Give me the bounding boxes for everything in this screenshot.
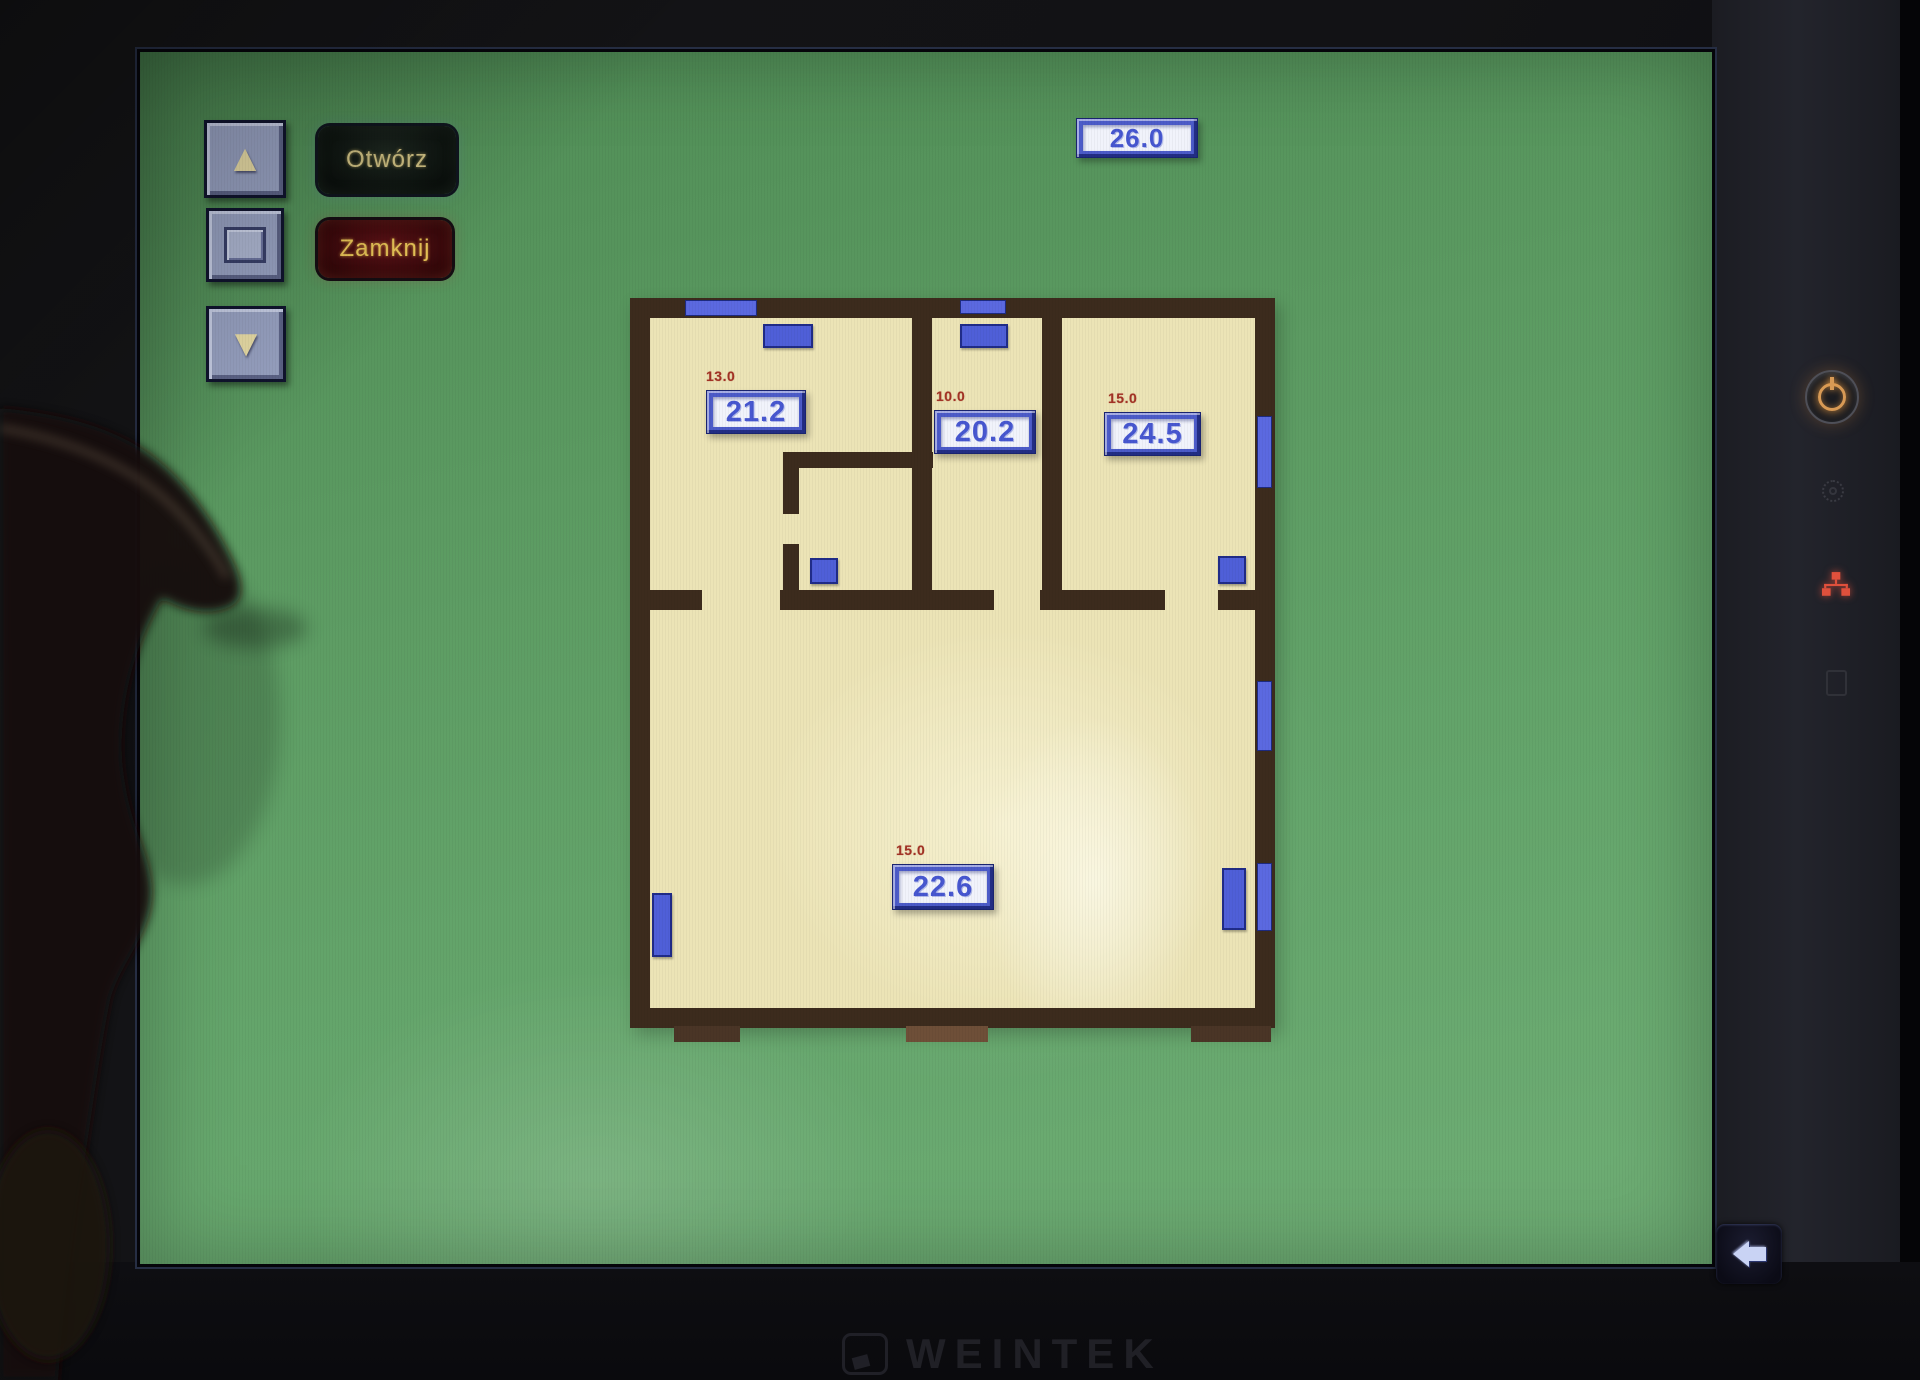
window-right-main-2 (1257, 863, 1272, 931)
wall-divider-b (780, 590, 994, 610)
main-room-temperature-value: 22.6 (899, 871, 987, 903)
down-arrow-icon: ▼ (227, 325, 265, 363)
back-button[interactable] (1716, 1224, 1782, 1284)
bezel-right-strip (1712, 0, 1900, 1380)
radiator-main-left (652, 893, 672, 957)
radiator-room2 (960, 324, 1008, 348)
wall-closet-left-upper (783, 468, 799, 514)
open-button-label: Otwórz (346, 146, 428, 174)
sd-card-icon (1826, 670, 1847, 696)
radiator-room3 (1218, 556, 1246, 584)
room3-temperature-value: 24.5 (1111, 419, 1194, 449)
close-button-label: Zamknij (339, 235, 430, 263)
room1-temperature-value: 21.2 (713, 397, 799, 427)
wall-bottom (630, 1008, 1275, 1028)
close-button[interactable]: Zamknij (318, 220, 452, 278)
room2-temperature-value: 20.2 (941, 417, 1029, 447)
wall-stub-center (906, 1026, 988, 1042)
room2-temperature-display[interactable]: 20.2 (934, 410, 1036, 454)
wall-divider-a (630, 590, 702, 610)
back-arrow-icon (1733, 1241, 1766, 1267)
outdoor-temperature-display[interactable]: 26.0 (1076, 118, 1198, 158)
open-button[interactable]: Otwórz (318, 126, 456, 194)
brightness-icon (1822, 480, 1844, 502)
room3-setpoint-label: 15.0 (1108, 390, 1137, 406)
power-button[interactable] (1805, 370, 1859, 424)
brand-mark-icon (842, 1333, 888, 1375)
main-room-temperature-display[interactable]: 22.6 (892, 864, 994, 910)
brand-name: WEINTEK (906, 1330, 1163, 1378)
ethernet-icon (1822, 572, 1850, 603)
window-right-room3 (1257, 416, 1272, 488)
wall-stub-left (674, 1026, 740, 1042)
wall-left (630, 298, 650, 1028)
room1-setpoint-label: 13.0 (706, 368, 735, 384)
shutter-stop-button[interactable] (206, 208, 284, 282)
main-room-setpoint-label: 15.0 (896, 842, 925, 858)
wall-room2-room3 (1042, 298, 1062, 610)
radiator-room1 (763, 324, 813, 348)
hmi-screen: ▲ ▼ Otwórz Zamknij 26.0 (140, 52, 1712, 1264)
radiator-main-right (1222, 868, 1246, 930)
wall-closet-top (783, 452, 933, 468)
radiator-closet (810, 558, 838, 584)
floorplan: 13.0 21.2 10.0 20.2 15.0 24.5 15.0 (630, 298, 1275, 1028)
wall-stub-right (1191, 1026, 1271, 1042)
shutter-down-button[interactable]: ▼ (206, 306, 286, 382)
outdoor-temperature-value: 26.0 (1083, 125, 1191, 151)
wall-closet-left-lower (783, 544, 799, 592)
shutter-up-button[interactable]: ▲ (204, 120, 286, 198)
room3-temperature-display[interactable]: 24.5 (1104, 412, 1201, 456)
power-tick-icon (1830, 377, 1834, 390)
window-top-room1 (685, 300, 757, 316)
window-right-main-1 (1257, 681, 1272, 751)
room2-setpoint-label: 10.0 (936, 388, 965, 404)
room1-temperature-display[interactable]: 21.2 (706, 390, 806, 434)
up-arrow-icon: ▲ (226, 140, 264, 178)
hmi-panel-photo: ▲ ▼ Otwórz Zamknij 26.0 (0, 0, 1920, 1380)
window-top-room2 (960, 300, 1006, 314)
wall-divider-d (1218, 590, 1275, 610)
bezel-edge-strip (1900, 0, 1920, 1380)
brand-logo: WEINTEK (842, 1330, 1163, 1378)
stop-icon (224, 227, 266, 263)
